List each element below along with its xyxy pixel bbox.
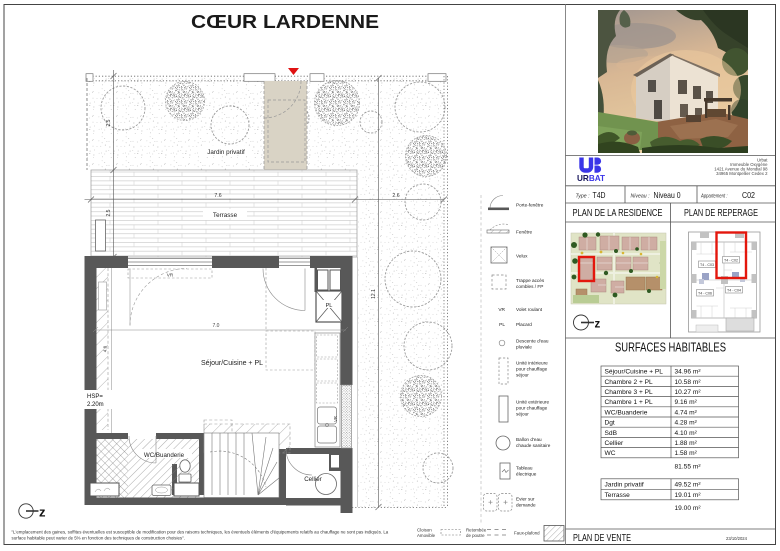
svg-text:T4 - C03: T4 - C03	[700, 263, 714, 267]
svg-text:4.8: 4.8	[103, 345, 108, 352]
svg-text:CŒUR LARDENNE: CŒUR LARDENNE	[191, 12, 379, 32]
svg-text:49.52 m²: 49.52 m²	[675, 482, 702, 489]
svg-text:2.6: 2.6	[392, 193, 399, 199]
svg-text:Jardin privatif: Jardin privatif	[207, 149, 245, 156]
svg-text:surface habitable peut varier: surface habitable peut varier de 5% en f…	[12, 536, 185, 541]
svg-text:chaude sanitaire: chaude sanitaire	[516, 443, 551, 448]
svg-text:z: z	[39, 505, 46, 520]
svg-text:URBAT: URBAT	[577, 174, 605, 183]
svg-text:Chambre 3 + PL: Chambre 3 + PL	[605, 389, 654, 396]
svg-text:Cellier: Cellier	[605, 440, 624, 447]
svg-text:23/10/2024: 23/10/2024	[726, 536, 748, 541]
svg-text:4.28 m²: 4.28 m²	[675, 420, 698, 427]
svg-text:Faux-plafond: Faux-plafond	[514, 531, 540, 536]
svg-text:C02: C02	[742, 190, 755, 200]
svg-text:10.27 m²: 10.27 m²	[675, 389, 702, 396]
svg-text:Ballon d'eau: Ballon d'eau	[516, 437, 542, 442]
svg-text:électrique: électrique	[516, 472, 537, 477]
svg-text:PLAN DE VENTE: PLAN DE VENTE	[573, 533, 631, 544]
svg-text:Cloison: Cloison	[417, 528, 432, 533]
svg-text:combles / FP: combles / FP	[516, 284, 543, 289]
svg-text:81.55 m²: 81.55 m²	[675, 464, 702, 471]
svg-text:Velux: Velux	[516, 254, 528, 259]
svg-text:1.58 m²: 1.58 m²	[675, 450, 698, 457]
svg-text:PLAN DE LA RESIDENCE: PLAN DE LA RESIDENCE	[573, 208, 663, 219]
svg-text:T4D: T4D	[593, 190, 606, 200]
svg-text:Niveau :: Niveau :	[631, 194, 651, 200]
svg-text:2.20m: 2.20m	[87, 402, 104, 408]
svg-text:T4 - C02: T4 - C02	[724, 259, 738, 263]
svg-text:10.58 m²: 10.58 m²	[675, 379, 702, 386]
svg-text:Descente d'eau: Descente d'eau	[516, 339, 549, 344]
svg-text:"L'emplacement des gaines, sof: "L'emplacement des gaines, soffites éven…	[12, 530, 389, 535]
svg-text:Tableau: Tableau	[516, 466, 533, 471]
svg-text:WC/Buanderie: WC/Buanderie	[605, 409, 648, 416]
svg-text:T4 - C04: T4 - C04	[727, 289, 741, 293]
svg-text:Evier sur: Evier sur	[516, 497, 535, 502]
svg-text:Porte-fenêtre: Porte-fenêtre	[516, 203, 544, 208]
svg-text:4.10 m²: 4.10 m²	[675, 430, 698, 437]
svg-text:WC: WC	[605, 450, 616, 457]
svg-text:Placard: Placard	[516, 322, 532, 327]
svg-text:pluviale: pluviale	[516, 345, 532, 350]
svg-text:PL: PL	[326, 303, 333, 309]
svg-text:Séjour/Cuisine + PL: Séjour/Cuisine + PL	[201, 360, 263, 367]
svg-text:VR: VR	[333, 416, 338, 422]
svg-text:Volet roulant: Volet roulant	[516, 307, 543, 312]
svg-text:12.1: 12.1	[371, 289, 377, 299]
svg-text:Trappe accès: Trappe accès	[516, 278, 545, 283]
svg-text:Unité extérieure: Unité extérieure	[516, 400, 549, 405]
svg-text:34965 Montpellier Cedex 2: 34965 Montpellier Cedex 2	[716, 171, 768, 176]
svg-text:Terrasse: Terrasse	[605, 492, 631, 499]
svg-text:Appartement :: Appartement :	[700, 194, 728, 200]
svg-text:2.5: 2.5	[106, 119, 112, 126]
svg-text:Fenêtre: Fenêtre	[516, 230, 533, 235]
svg-text:PLAN DE REPERAGE: PLAN DE REPERAGE	[684, 208, 758, 219]
svg-text:Terrasse: Terrasse	[213, 212, 238, 219]
svg-text:T4 - C06: T4 - C06	[698, 292, 712, 296]
svg-text:séjour: séjour	[516, 373, 529, 378]
svg-text:HSP=: HSP=	[87, 394, 103, 400]
svg-text:Cellier: Cellier	[304, 476, 322, 483]
svg-text:VR: VR	[498, 307, 505, 313]
svg-text:7.6: 7.6	[214, 193, 221, 199]
svg-text:Niveau 0: Niveau 0	[654, 190, 681, 200]
svg-text:PL: PL	[499, 322, 505, 328]
svg-text:Chambre 1 + PL: Chambre 1 + PL	[605, 399, 654, 406]
svg-text:pour chauffage: pour chauffage	[516, 367, 548, 372]
svg-text:19.01 m²: 19.01 m²	[675, 492, 702, 499]
svg-text:séjour: séjour	[516, 412, 529, 417]
svg-text:Amovible: Amovible	[417, 533, 436, 538]
svg-text:Retombée: Retombée	[466, 528, 487, 533]
svg-text:z: z	[595, 319, 601, 331]
svg-text:Dgt: Dgt	[605, 420, 615, 427]
svg-text:demande: demande	[516, 503, 536, 508]
svg-text:VR: VR	[167, 273, 174, 278]
svg-text:Type :: Type :	[576, 194, 591, 200]
svg-text:Unité intérieure: Unité intérieure	[516, 361, 548, 366]
svg-text:7.0: 7.0	[213, 323, 220, 329]
svg-text:4.74 m²: 4.74 m²	[675, 409, 698, 416]
svg-text:34.96 m²: 34.96 m²	[675, 369, 702, 376]
svg-text:2.5: 2.5	[106, 209, 112, 216]
svg-text:1.88 m²: 1.88 m²	[675, 440, 698, 447]
svg-text:pour chauffage: pour chauffage	[516, 406, 548, 411]
svg-text:Séjour/Cuisine + PL: Séjour/Cuisine + PL	[605, 369, 664, 376]
svg-text:SURFACES HABITABLES: SURFACES HABITABLES	[615, 341, 726, 355]
svg-text:WC/Buanderie: WC/Buanderie	[144, 452, 185, 459]
svg-text:9.16 m²: 9.16 m²	[675, 399, 698, 406]
svg-text:19.00 m²: 19.00 m²	[675, 505, 702, 512]
svg-text:Jardin privatif: Jardin privatif	[605, 482, 644, 489]
svg-text:Chambre 2 + PL: Chambre 2 + PL	[605, 379, 654, 386]
svg-text:de poutre: de poutre	[466, 533, 485, 538]
svg-text:SdB: SdB	[605, 430, 618, 437]
